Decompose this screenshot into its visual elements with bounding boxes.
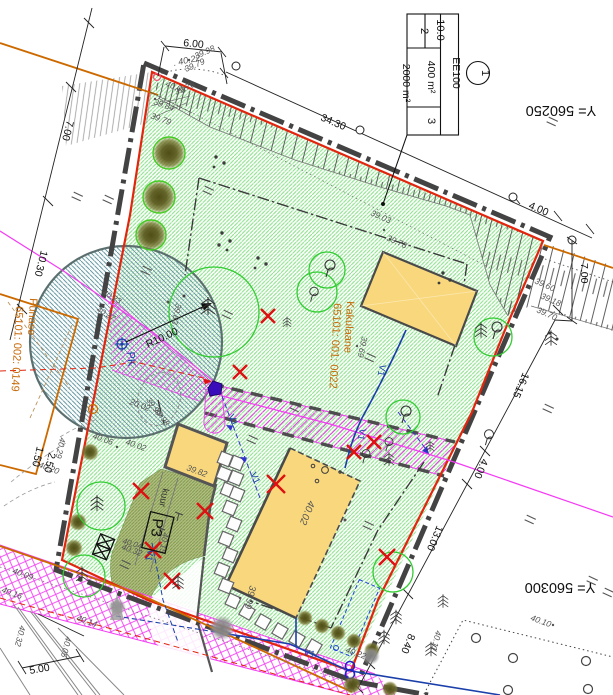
svg-text:10.0: 10.0 — [434, 19, 446, 40]
svg-text:400 m²: 400 m² — [425, 61, 437, 94]
svg-text:2000 m²: 2000 m² — [400, 64, 412, 103]
svg-text:2: 2 — [418, 28, 430, 34]
svg-text:Punase: Punase — [25, 298, 39, 336]
svg-text:PK: PK — [124, 351, 137, 367]
svg-text:7.00: 7.00 — [578, 263, 590, 284]
svg-text:3: 3 — [425, 118, 437, 124]
svg-text:Y= 560300: Y= 560300 — [525, 579, 596, 595]
svg-text:P3: P3 — [147, 518, 166, 538]
svg-text:1: 1 — [479, 70, 491, 76]
svg-text:EE100: EE100 — [450, 57, 462, 89]
svg-text:Y= 560250: Y= 560250 — [526, 102, 597, 118]
